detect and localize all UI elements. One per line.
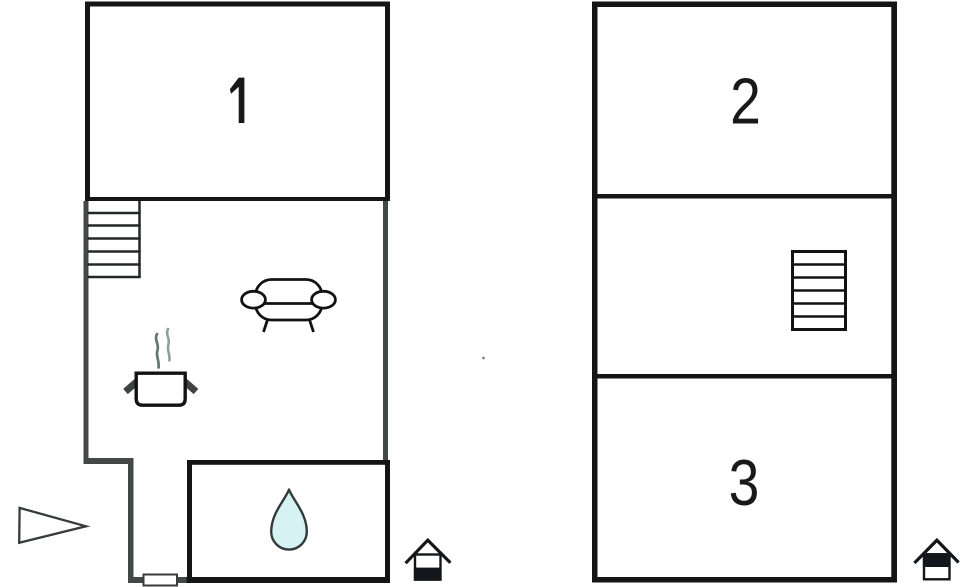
- svg-text:3: 3: [729, 446, 760, 519]
- svg-text:2: 2: [730, 64, 761, 137]
